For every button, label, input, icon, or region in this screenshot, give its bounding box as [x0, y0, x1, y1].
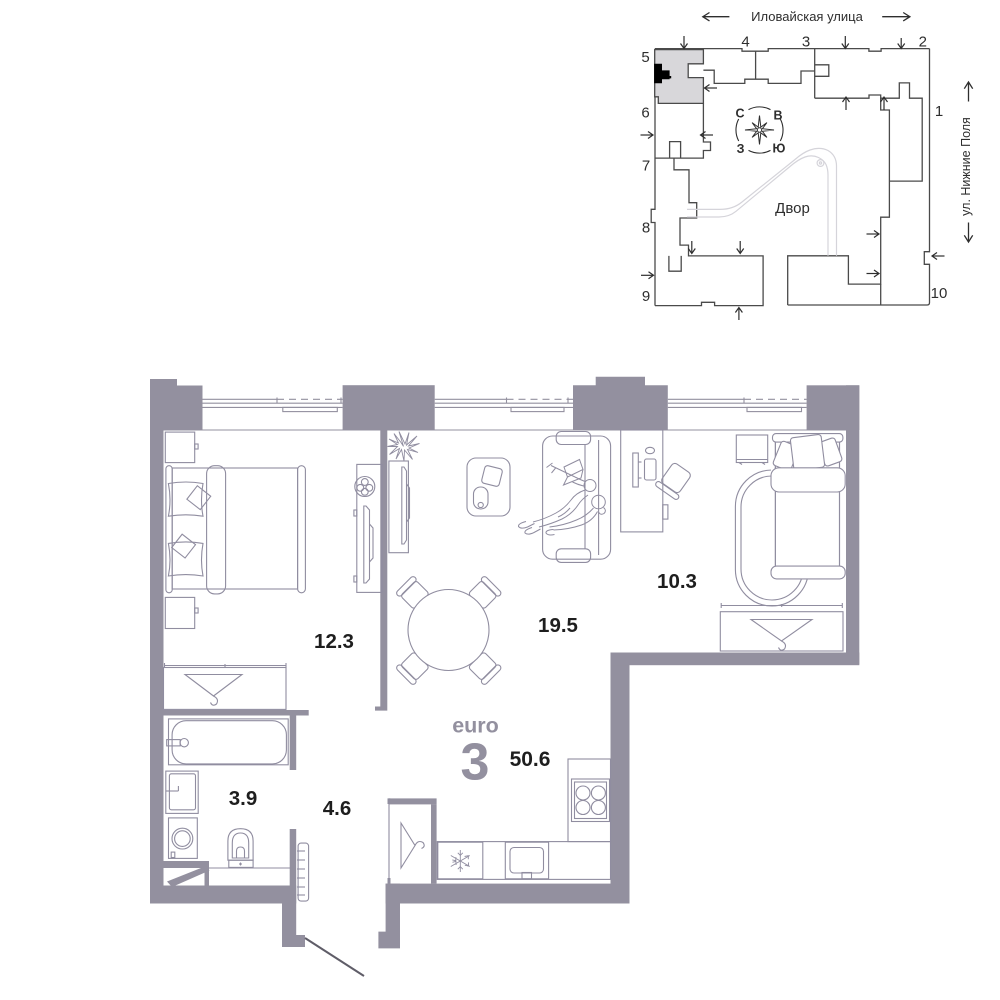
svg-text:В: В: [773, 109, 782, 123]
svg-text:4.6: 4.6: [323, 797, 352, 820]
svg-text:ул. Нижние Поля: ул. Нижние Поля: [959, 117, 973, 216]
svg-text:50.6: 50.6: [510, 748, 551, 771]
svg-text:3.9: 3.9: [229, 787, 258, 810]
svg-text:З: З: [737, 142, 745, 156]
svg-text:10.3: 10.3: [657, 570, 697, 593]
svg-text:Иловайская улица: Иловайская улица: [751, 9, 863, 24]
svg-text:6: 6: [641, 105, 649, 122]
svg-text:5: 5: [641, 49, 649, 66]
svg-text:С: С: [735, 107, 744, 121]
svg-text:7: 7: [642, 158, 650, 175]
svg-text:9: 9: [642, 288, 650, 305]
svg-text:19.5: 19.5: [538, 614, 578, 637]
svg-text:2: 2: [919, 34, 927, 51]
svg-text:3: 3: [461, 734, 490, 792]
svg-text:4: 4: [741, 34, 749, 51]
svg-text:Двор: Двор: [775, 200, 810, 217]
svg-text:1: 1: [935, 103, 943, 120]
svg-text:Ю: Ю: [773, 142, 786, 156]
svg-text:10: 10: [931, 285, 948, 302]
svg-text:12.3: 12.3: [314, 630, 354, 653]
svg-text:3: 3: [802, 34, 810, 51]
svg-text:8: 8: [642, 220, 650, 237]
